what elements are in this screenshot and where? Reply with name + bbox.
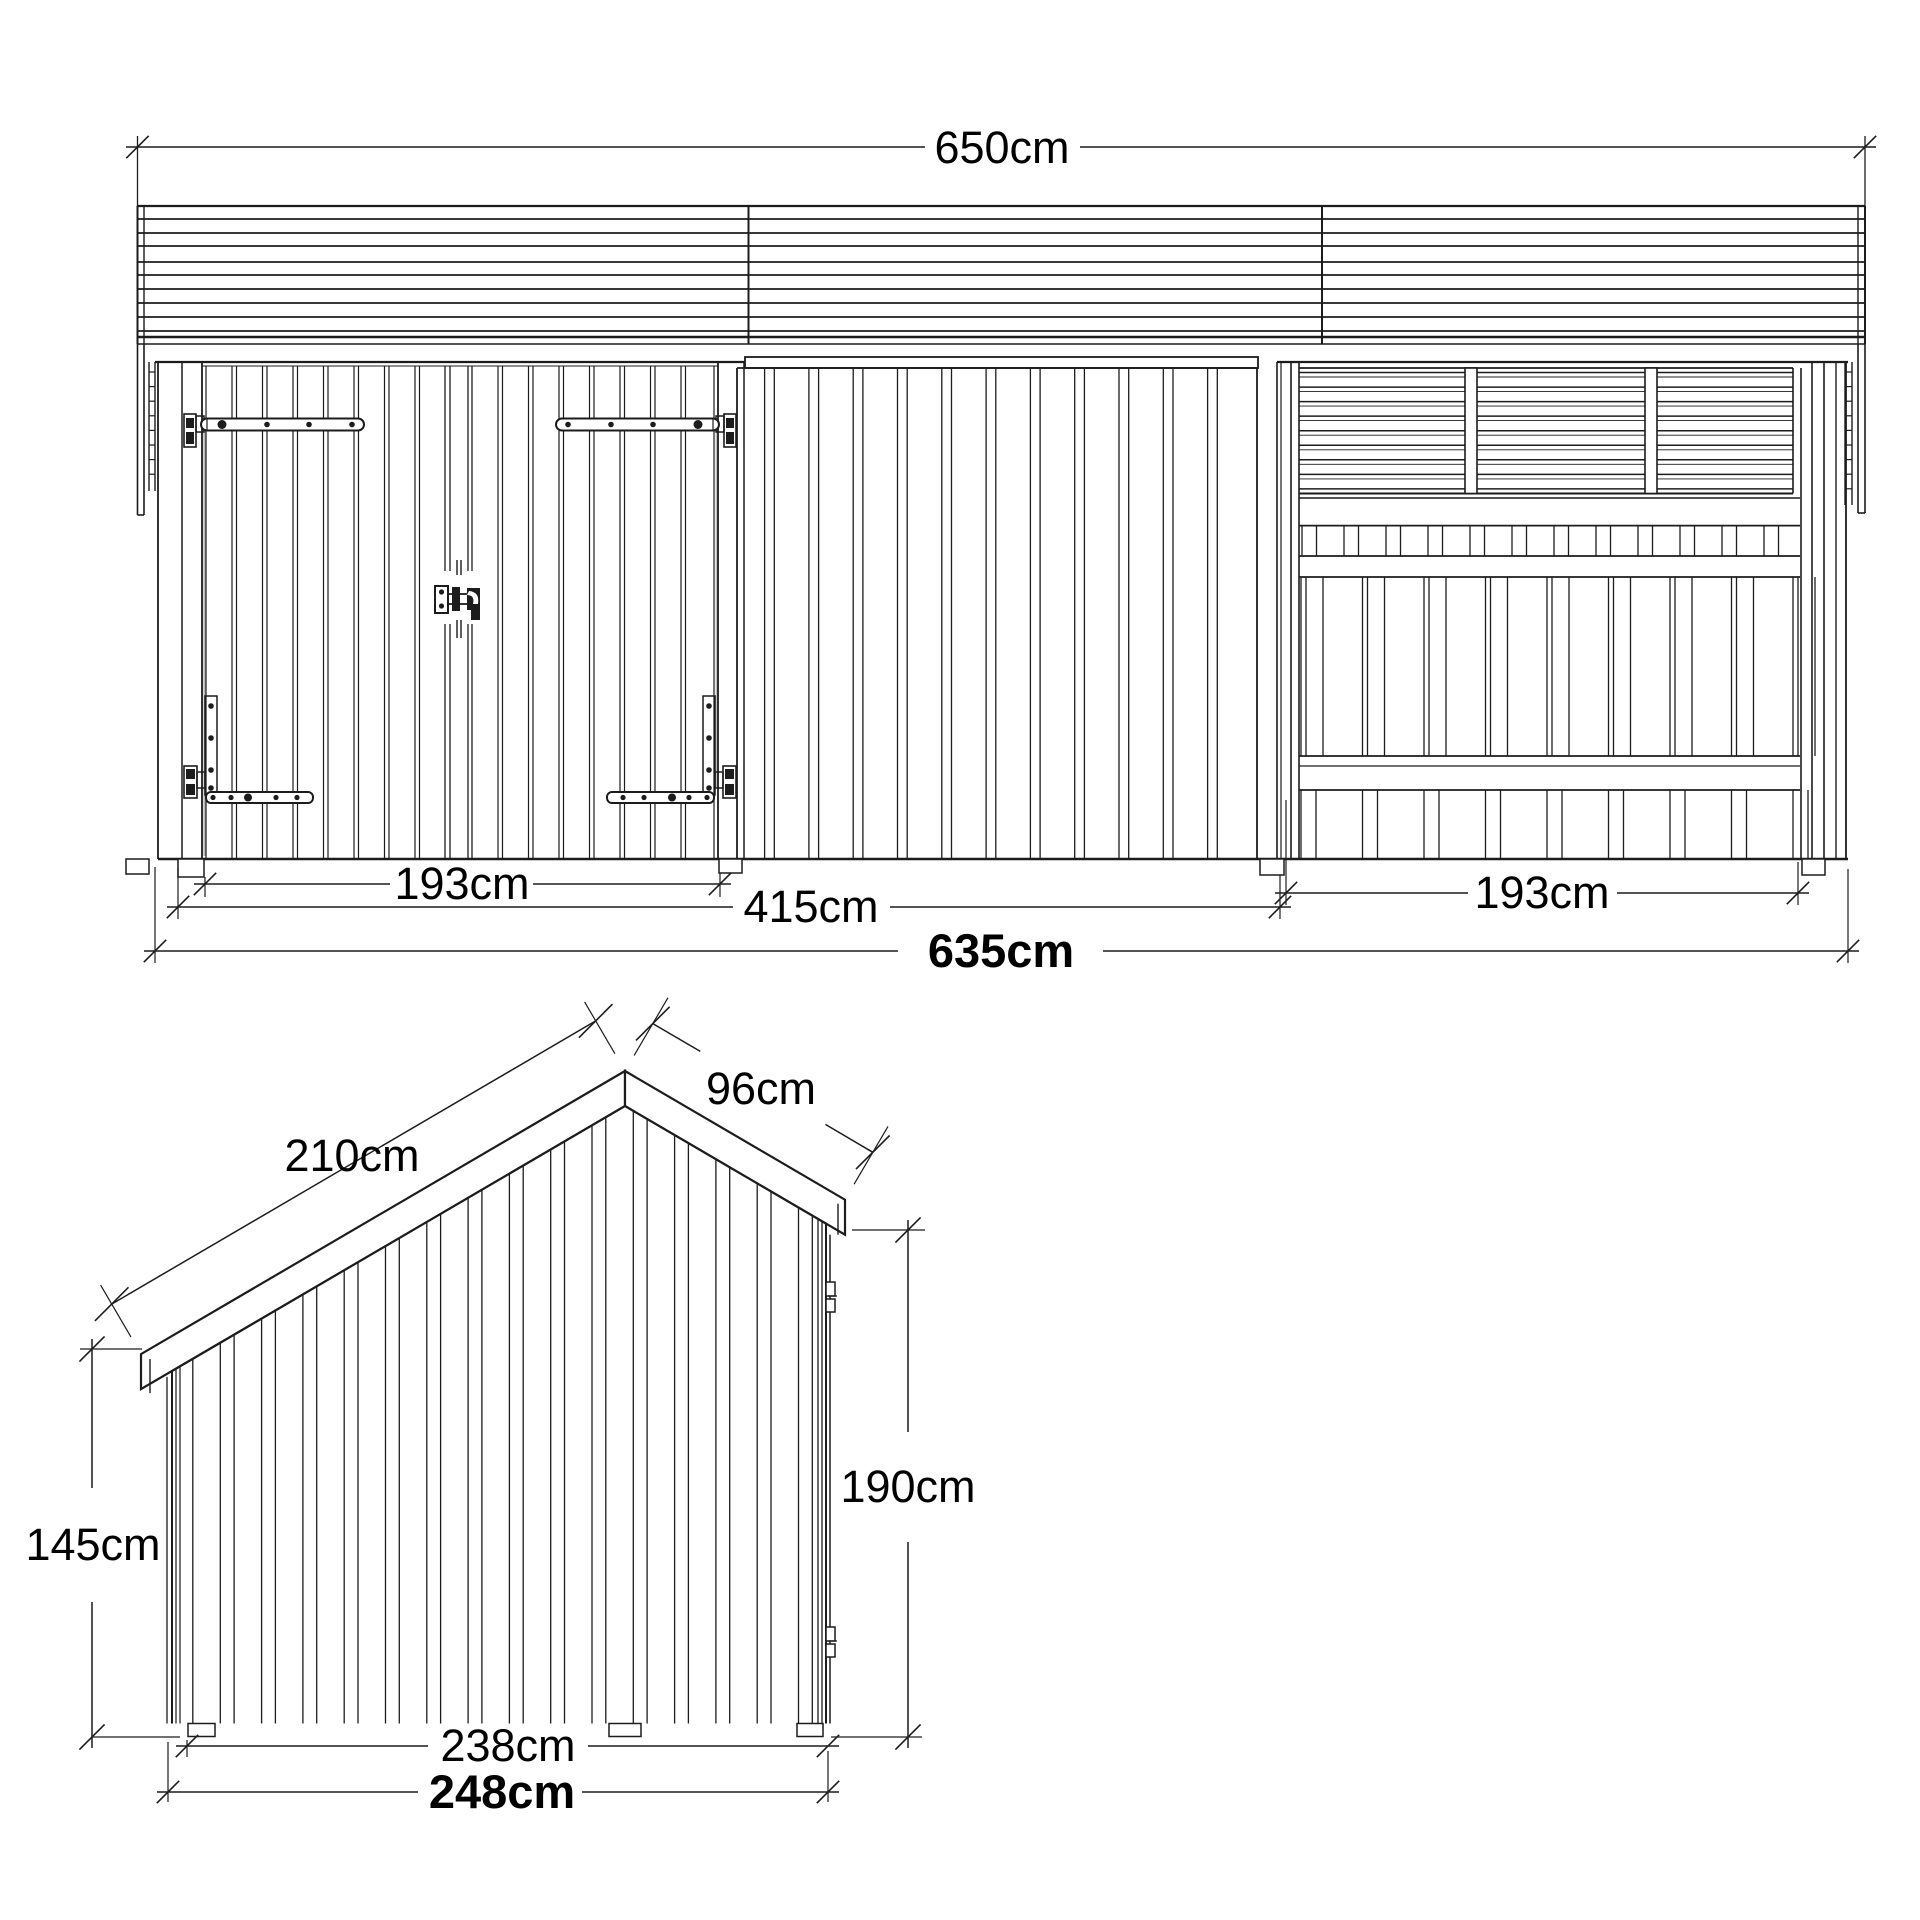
svg-text:96cm: 96cm <box>706 1063 816 1114</box>
svg-text:650cm: 650cm <box>934 122 1069 173</box>
svg-text:145cm: 145cm <box>25 1519 160 1570</box>
svg-text:238cm: 238cm <box>440 1720 575 1771</box>
svg-text:635cm: 635cm <box>928 924 1074 977</box>
svg-text:193cm: 193cm <box>394 858 529 909</box>
svg-text:415cm: 415cm <box>743 881 878 932</box>
svg-text:193cm: 193cm <box>1474 867 1609 918</box>
svg-text:190cm: 190cm <box>840 1461 975 1512</box>
svg-text:210cm: 210cm <box>284 1130 419 1181</box>
svg-text:248cm: 248cm <box>429 1765 575 1818</box>
